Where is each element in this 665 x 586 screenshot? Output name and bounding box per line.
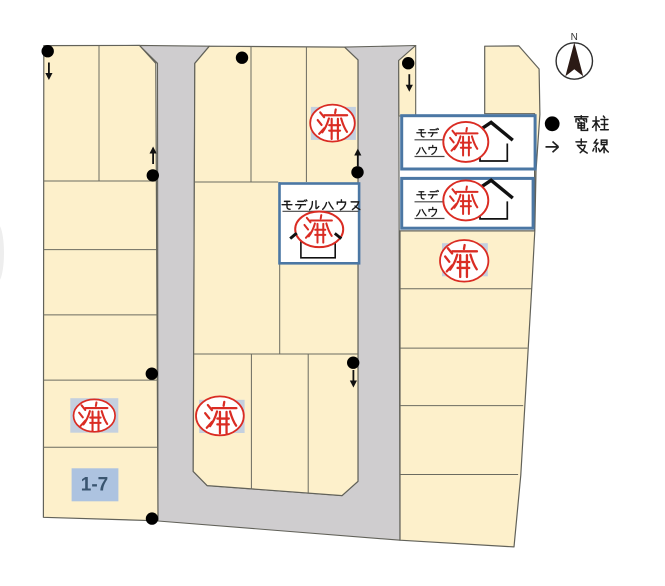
svg-text:N: N [571, 32, 578, 43]
svg-text:1-7: 1-7 [81, 475, 108, 496]
